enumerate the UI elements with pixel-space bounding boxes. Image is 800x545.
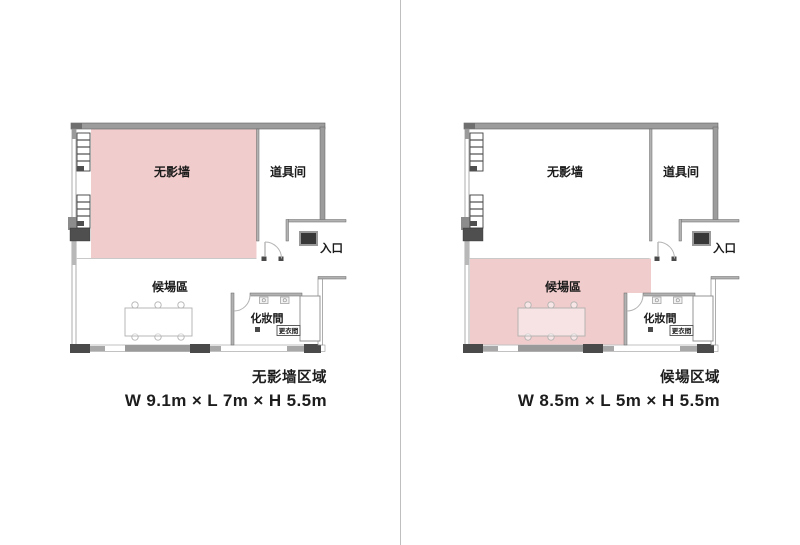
caption-studio-zone: 无影墙区域 W 9.1m × L 7m × H 5.5m [66,366,327,411]
caption-waiting-zone: 候場区域 W 8.5m × L 5m × H 5.5m [459,366,720,411]
highlight-studio-zone [91,129,257,259]
floor-plan-waiting-zone [459,113,743,359]
panel-divider [400,0,401,545]
caption-studio-zone-dimensions: W 9.1m × L 7m × H 5.5m [66,391,327,411]
caption-waiting-zone-title: 候場区域 [459,366,720,387]
caption-waiting-zone-dimensions: W 8.5m × L 5m × H 5.5m [459,391,720,411]
caption-studio-zone-title: 无影墙区域 [66,366,327,387]
floor-plan-studio-zone: 更衣間 无影墙 道具间 候場區 化妝間 入口 [66,113,350,359]
